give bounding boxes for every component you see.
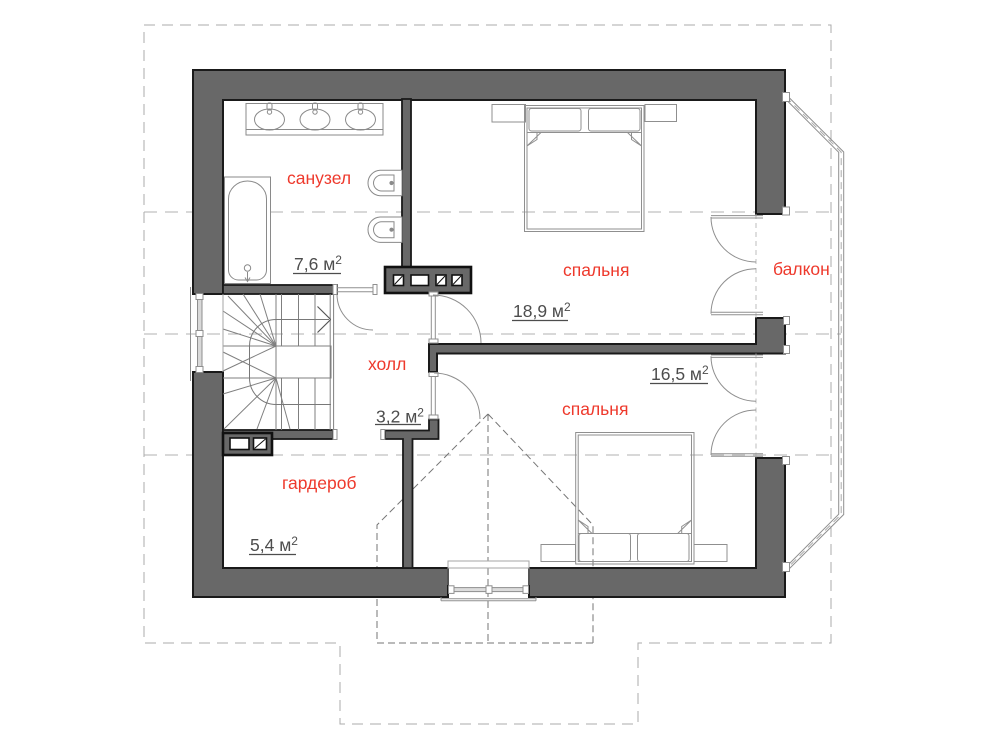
svg-text:холл: холл <box>368 354 406 374</box>
svg-text:18,9 м2: 18,9 м2 <box>513 300 571 321</box>
svg-text:спальня: спальня <box>562 399 628 419</box>
svg-text:гардероб: гардероб <box>282 473 357 493</box>
svg-text:3,2 м2: 3,2 м2 <box>376 406 424 427</box>
svg-text:спальня: спальня <box>563 260 629 280</box>
svg-text:5,4 м2: 5,4 м2 <box>250 534 298 555</box>
svg-text:7,6 м2: 7,6 м2 <box>294 253 342 274</box>
svg-text:16,5 м2: 16,5 м2 <box>651 363 709 384</box>
svg-text:балкон: балкон <box>773 259 830 279</box>
svg-text:санузел: санузел <box>287 168 351 188</box>
